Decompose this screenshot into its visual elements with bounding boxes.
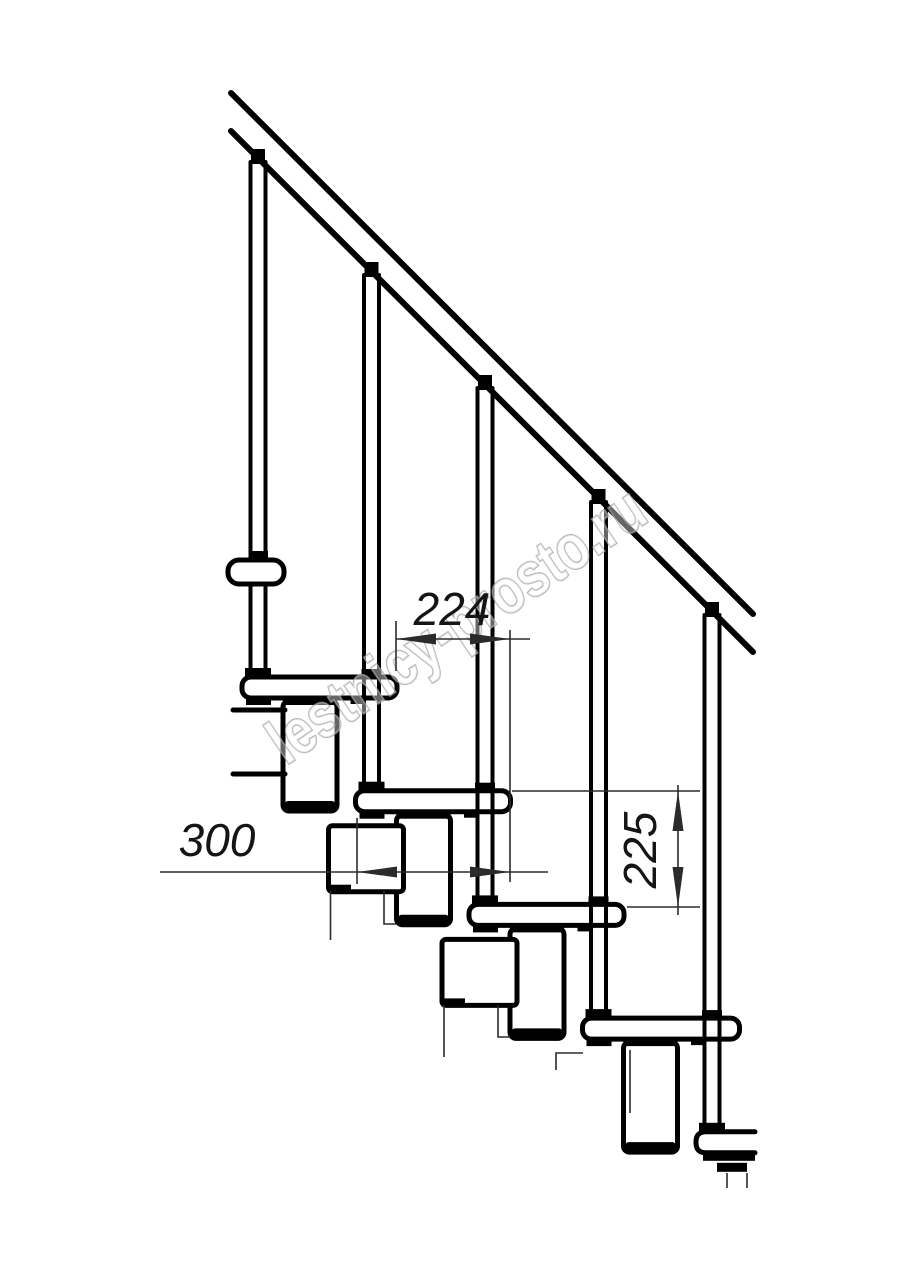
dimension-label-run: 224 bbox=[413, 583, 491, 635]
tread-2 bbox=[356, 791, 511, 812]
dimension-label-depth: 300 bbox=[179, 814, 256, 866]
baluster-5 bbox=[705, 615, 720, 1123]
baluster-4 bbox=[591, 502, 606, 1009]
arrow-down-icon bbox=[673, 867, 684, 907]
arrow-up-icon bbox=[673, 791, 684, 831]
module-column-4 bbox=[624, 1042, 678, 1152]
stair-technical-drawing: lestnicy-prosto.ru 224 300 225 bbox=[0, 0, 914, 1280]
tread-5 bbox=[696, 1132, 755, 1153]
baluster-1 bbox=[251, 162, 266, 668]
tread-3 bbox=[469, 904, 624, 925]
arrow-right-icon bbox=[470, 867, 510, 878]
dimension-label-rise: 225 bbox=[614, 811, 666, 889]
module-box-under-tread-2 bbox=[329, 826, 404, 892]
bottom-bracket bbox=[717, 1163, 747, 1188]
tread-4 bbox=[583, 1018, 740, 1039]
module-box-under-tread-3 bbox=[442, 939, 517, 1005]
drawing-svg: lestnicy-prosto.ru 224 300 225 bbox=[0, 0, 914, 1280]
handrail-cross-section bbox=[228, 551, 284, 584]
module-box-under-tread-4-hidden-lines bbox=[556, 1050, 630, 1113]
